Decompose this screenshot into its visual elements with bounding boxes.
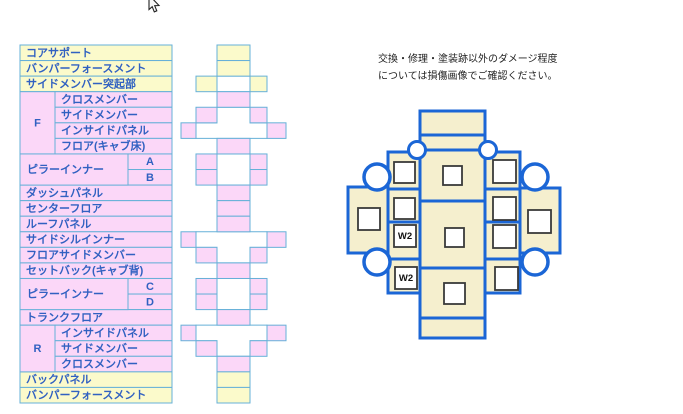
frame-cell bbox=[181, 232, 196, 248]
part-label: センターフロア bbox=[26, 202, 102, 215]
frame-cell bbox=[250, 170, 267, 186]
part-label: クロスメンバー bbox=[61, 93, 138, 106]
frame-cell bbox=[217, 263, 250, 279]
frame-cell bbox=[196, 170, 217, 186]
part-label: サイドメンバー bbox=[61, 109, 138, 122]
wheel-circle bbox=[522, 164, 548, 190]
frame-cell bbox=[196, 247, 217, 263]
damage-checkbox[interactable] bbox=[444, 283, 465, 304]
part-label: バックパネル bbox=[26, 373, 91, 386]
part-label: インサイドパネル bbox=[61, 124, 149, 137]
frame-cell bbox=[250, 154, 267, 170]
part-group-label: ピラーインナー bbox=[27, 163, 104, 176]
frame-cell bbox=[267, 123, 286, 139]
frame-cell bbox=[250, 341, 267, 357]
frame-white-area bbox=[217, 154, 250, 185]
damage-checkbox[interactable] bbox=[493, 197, 516, 220]
part-label: A bbox=[146, 156, 154, 168]
damage-checkbox[interactable] bbox=[495, 267, 518, 290]
part-label: D bbox=[146, 296, 154, 308]
damage-checkbox[interactable] bbox=[493, 225, 516, 248]
vehicle-top-view-diagram: W2W2 bbox=[348, 111, 560, 338]
frame-cell bbox=[196, 341, 217, 357]
part-label: フロアサイドメンバー bbox=[26, 249, 136, 262]
frame-cell bbox=[181, 123, 196, 139]
damage-mark-w2: W2 bbox=[399, 273, 413, 284]
frame-cell bbox=[196, 294, 217, 310]
frame-white-area bbox=[217, 76, 250, 92]
part-label: サイドメンバー突起部 bbox=[26, 76, 136, 90]
frame-cell bbox=[250, 247, 267, 263]
part-label: B bbox=[146, 172, 154, 184]
strut-circle bbox=[480, 142, 497, 159]
damage-checkbox[interactable] bbox=[443, 166, 462, 185]
frame-cell bbox=[267, 325, 286, 341]
frame-cell bbox=[196, 107, 217, 123]
part-label: バンパーフォースメント bbox=[26, 389, 146, 402]
note-line-2: については損傷画像でご確認ください。 bbox=[378, 68, 558, 85]
frame-cell bbox=[181, 325, 196, 341]
frame-cell bbox=[196, 76, 217, 92]
damage-checkbox[interactable] bbox=[358, 208, 380, 230]
part-label: ルーフパネル bbox=[26, 217, 91, 230]
part-label: コアサポート bbox=[26, 45, 92, 59]
parts-table: コアサポートバンパーフォースメントサイドメンバー突起部クロスメンバーサイドメンバ… bbox=[20, 45, 172, 403]
frame-cell bbox=[196, 278, 217, 294]
frame-white-area bbox=[217, 278, 250, 309]
frame-cell bbox=[217, 310, 250, 326]
part-group-label: R bbox=[34, 343, 42, 355]
part-label: ダッシュパネル bbox=[26, 185, 103, 199]
frame-cell bbox=[217, 138, 250, 154]
frame-cell bbox=[217, 45, 250, 61]
frame-cell bbox=[217, 201, 250, 217]
note-line-1: 交換・修理・塗装跡以外のダメージ程度 bbox=[378, 51, 558, 68]
frame-cell bbox=[196, 154, 217, 170]
front-bumper-block bbox=[420, 111, 485, 152]
frame-cell bbox=[217, 356, 250, 372]
frame-cell bbox=[217, 372, 250, 388]
frame-cell bbox=[250, 107, 267, 123]
frame-cross-section-diagram bbox=[181, 45, 286, 403]
damage-checkbox[interactable] bbox=[493, 160, 516, 183]
wheel-circle bbox=[522, 249, 548, 275]
part-label: トランクフロア bbox=[26, 311, 103, 324]
damage-assessment-page: コアサポートバンパーフォースメントサイドメンバー突起部クロスメンバーサイドメンバ… bbox=[0, 0, 683, 414]
part-group-label: ピラーインナー bbox=[27, 288, 104, 301]
part-label: クロスメンバー bbox=[61, 358, 138, 371]
wheel-circle bbox=[364, 164, 390, 190]
frame-cell bbox=[217, 61, 250, 77]
mouse-cursor-icon bbox=[149, 0, 159, 12]
damage-checkbox[interactable] bbox=[528, 210, 551, 233]
frame-cell bbox=[217, 185, 250, 201]
damage-mark-w2: W2 bbox=[398, 231, 412, 242]
part-label: サイドシルインナー bbox=[26, 233, 125, 246]
part-label: セットバック(キャブ背) bbox=[26, 263, 144, 277]
frame-cell bbox=[267, 232, 286, 248]
frame-cell bbox=[217, 387, 250, 403]
damage-diagram-scene: コアサポートバンパーフォースメントサイドメンバー突起部クロスメンバーサイドメンバ… bbox=[0, 0, 683, 414]
part-label: インサイドパネル bbox=[61, 326, 149, 339]
damage-checkbox[interactable] bbox=[394, 198, 415, 219]
note-text: 交換・修理・塗装跡以外のダメージ程度 については損傷画像でご確認ください。 bbox=[378, 51, 558, 85]
frame-cell bbox=[250, 278, 267, 294]
part-label: C bbox=[146, 281, 154, 293]
wheel-circle bbox=[364, 249, 390, 275]
damage-checkbox[interactable] bbox=[394, 162, 415, 183]
part-label: バンパーフォースメント bbox=[26, 62, 146, 75]
strut-circle bbox=[409, 142, 426, 159]
damage-checkbox[interactable] bbox=[445, 228, 464, 247]
frame-cell bbox=[217, 92, 250, 108]
part-group-label: F bbox=[34, 117, 41, 129]
part-label: フロア(キャブ床) bbox=[61, 139, 146, 153]
frame-cell bbox=[250, 294, 267, 310]
part-label: サイドメンバー bbox=[61, 342, 138, 355]
frame-cell bbox=[217, 216, 250, 232]
frame-cell bbox=[250, 76, 267, 92]
